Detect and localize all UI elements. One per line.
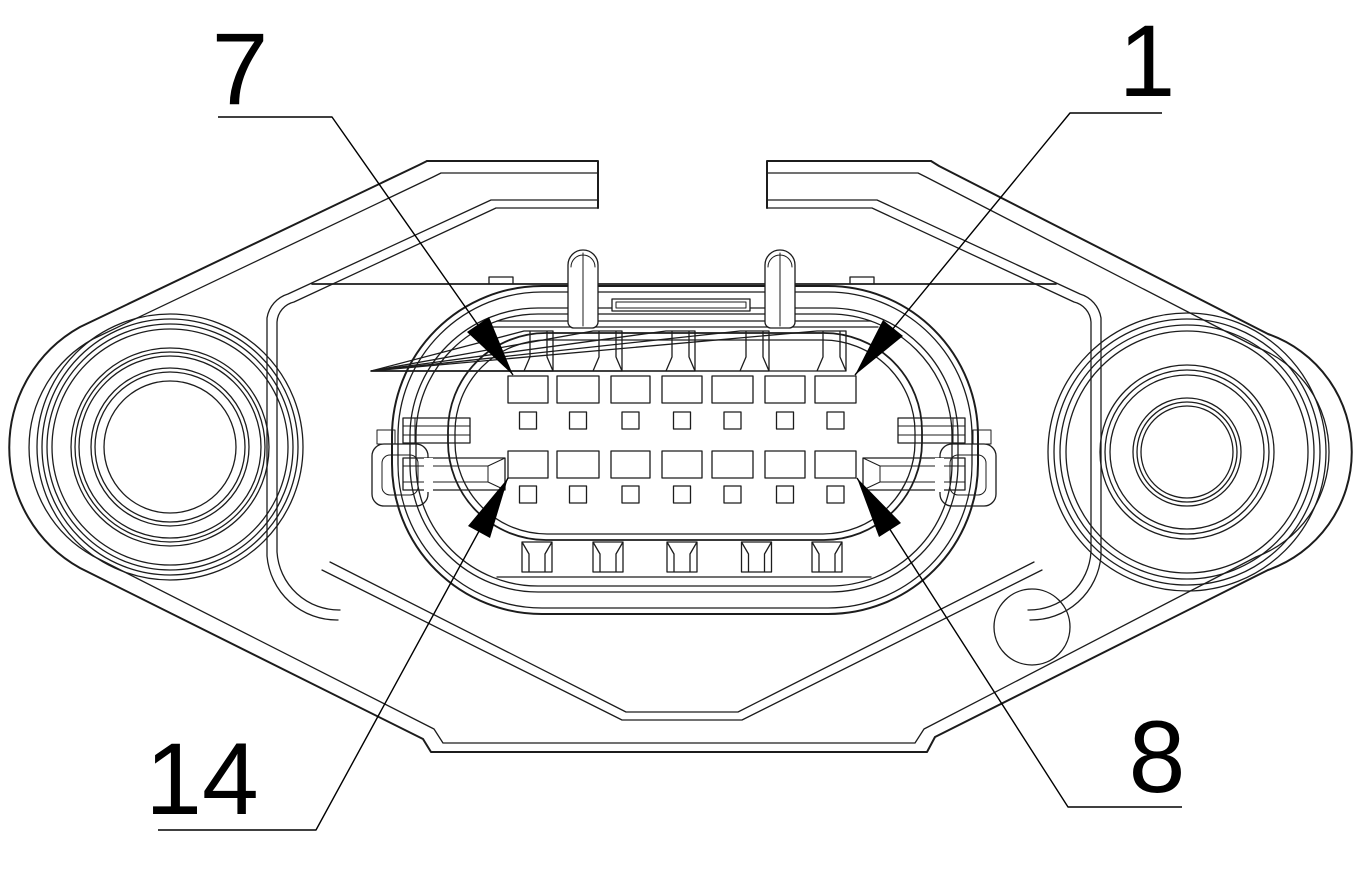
callouts: 7 1 14 8 [145,4,1185,836]
callout-pin-1-label: 1 [1119,4,1176,118]
right-boss-ring-1 [1048,313,1326,591]
callout-pin-7-label: 7 [212,12,269,126]
left-boss-ring-9 [95,372,245,522]
connector-drawing-svg: 7 1 14 8 [0,0,1368,878]
arrowhead-8-icon [857,478,901,537]
callout-pin-14-label: 14 [145,722,258,836]
left-boss-ring-10 [104,381,236,513]
left-boss-ring-4 [52,329,288,565]
pin-cavity-row2-col4 [662,451,702,478]
square-aperture-row1-col2 [570,412,587,429]
square-aperture-row2-col6 [777,486,794,503]
right-boss-ring-5 [1100,365,1274,539]
square-aperture-row1-col3 [622,412,639,429]
square-aperture-row2-col7 [827,486,844,503]
top-tab-3 [371,331,695,371]
square-aperture-row1-col6 [777,412,794,429]
left-mounting-hole [37,314,303,580]
right-boss-ring-4 [1066,331,1308,573]
square-aperture-row2-col4 [674,486,691,503]
bottom-tab-2 [593,542,623,572]
pin-cavity-grid [508,376,856,503]
pin-cavity-row2-col7 [815,451,856,478]
square-aperture-row1-col4 [674,412,691,429]
right-boss-ring-9 [1137,402,1237,502]
top-rib-bar [612,299,750,311]
bottom-tab-4 [742,542,772,572]
bottom-tab-5 [812,542,842,572]
left-boss-ring-8 [91,368,249,526]
pin-cavity-row1-col4 [662,376,702,403]
pin-cavity-row1-col7 [815,376,856,403]
left-boss-ring-7 [79,356,261,538]
left-boss-ring-5 [71,348,269,546]
square-aperture-row1-col7 [827,412,844,429]
connector-technical-drawing: 7 1 14 8 [0,0,1368,878]
right-boss-ring-6 [1105,370,1269,534]
pin-cavity-row2-col2 [557,451,599,478]
square-aperture-row2-col1 [520,486,537,503]
square-aperture-row2-col5 [724,486,741,503]
right-mounting-hole [1048,313,1326,591]
square-aperture-row2-col3 [622,486,639,503]
right-boss-ring-8 [1133,398,1241,506]
square-aperture-row1-col5 [724,412,741,429]
square-aperture-row1-col1 [520,412,537,429]
square-aperture-row2-col2 [570,486,587,503]
callout-pin-8-label: 8 [1129,700,1186,814]
pin-cavity-row1-col3 [611,376,650,403]
arrowhead-1-icon [855,320,903,375]
left-boss-ring-1 [37,314,303,580]
polarization-posts [568,250,795,328]
pin-cavity-row1-col1 [508,376,548,403]
top-tab-1 [371,331,553,371]
alignment-hole [994,589,1070,665]
pin-cavity-row2-col5 [712,451,753,478]
pin-cavity-row1-col6 [765,376,805,403]
pin-cavity-row1-col5 [712,376,753,403]
bottom-tab-3 [667,542,697,572]
right-boss-ring-10 [1141,406,1233,498]
left-boss-ring-2 [42,319,298,575]
pin-cavity-row2-col1 [508,451,548,478]
pin-cavity-row2-col6 [765,451,805,478]
right-boss-ring-3 [1060,325,1314,579]
bottom-tab-1 [522,542,552,572]
pin-cavity-row2-col3 [611,451,650,478]
connector-shroud [312,277,1056,614]
left-boss-ring-3 [47,324,293,570]
pin-cavity-row1-col2 [557,376,599,403]
flange-outline [9,161,1351,752]
